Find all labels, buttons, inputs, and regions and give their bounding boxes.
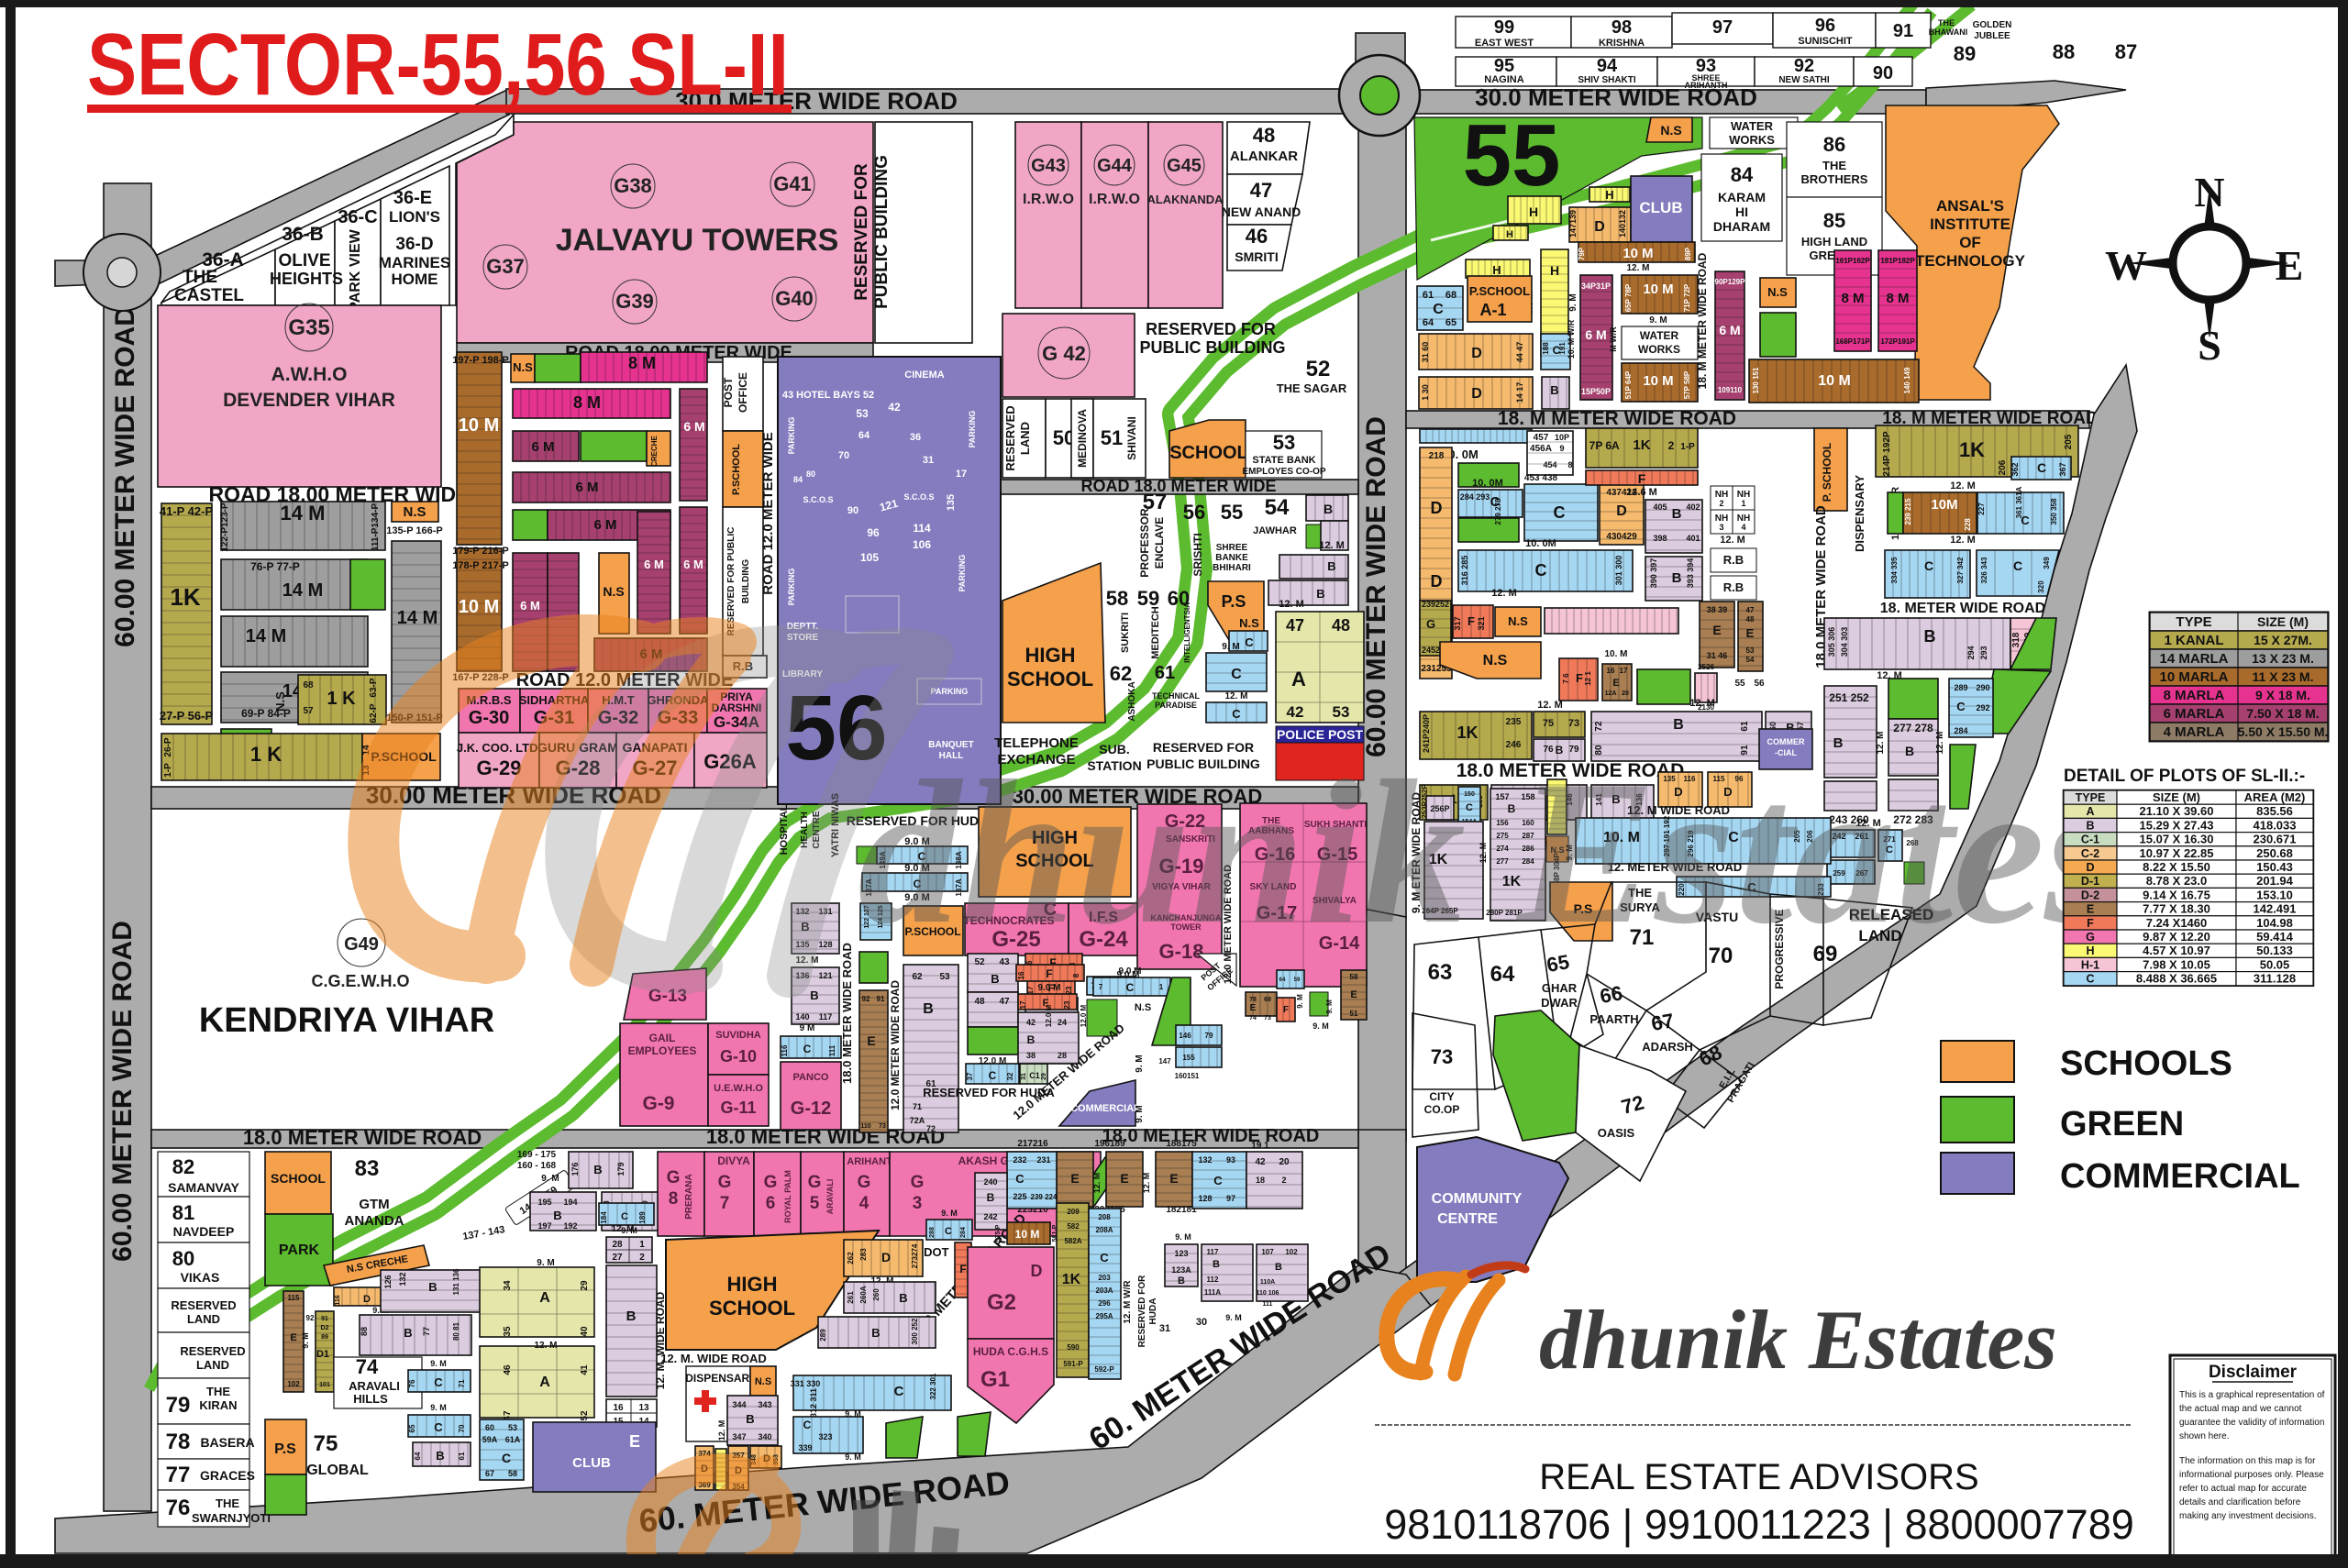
svg-text:37: 37 [966, 1072, 974, 1080]
svg-text:CITY: CITY [1429, 1090, 1454, 1103]
svg-text:6 M: 6 M [531, 439, 554, 455]
svg-text:17: 17 [1019, 1000, 1027, 1009]
svg-text:168P171P: 168P171P [1835, 337, 1870, 346]
svg-text:189: 189 [638, 1211, 647, 1224]
svg-text:CINEMA: CINEMA [904, 370, 944, 381]
svg-text:GRACES: GRACES [200, 1468, 255, 1483]
svg-text:81: 81 [172, 1201, 194, 1224]
svg-text:LION'S: LION'S [389, 208, 440, 226]
svg-text:A.W.H.O: A.W.H.O [271, 364, 348, 385]
svg-text:140 149: 140 149 [1903, 367, 1911, 393]
svg-text:H: H [2086, 944, 2094, 957]
svg-text:582: 582 [1067, 1222, 1080, 1231]
svg-text:9.87 X 12.20: 9.87 X 12.20 [2143, 930, 2210, 944]
svg-text:196189: 196189 [1094, 1139, 1125, 1149]
svg-text:126: 126 [383, 1275, 393, 1288]
svg-text:G: G [718, 1173, 732, 1192]
svg-text:48: 48 [1332, 616, 1350, 635]
svg-text:STATE BANK: STATE BANK [1252, 455, 1315, 466]
svg-text:E: E [1746, 626, 1755, 640]
svg-text:C-2: C-2 [2081, 847, 2099, 860]
svg-text:B: B [1275, 1262, 1282, 1273]
svg-text:C: C [1535, 561, 1547, 580]
svg-text:197: 197 [537, 1221, 551, 1231]
svg-text:9. M: 9. M [1135, 1055, 1145, 1072]
svg-text:62: 62 [1110, 662, 1132, 685]
svg-text:10 M: 10 M [459, 415, 499, 436]
svg-text:PARKING: PARKING [787, 569, 796, 606]
svg-text:18. M METER WIDE ROAD: 18. M METER WIDE ROAD [1696, 252, 1709, 389]
svg-text:M W/R: M W/R [1609, 326, 1618, 352]
svg-text:ARAVALI: ARAVALI [349, 1379, 400, 1393]
svg-text:HEIGHTS: HEIGHTS [270, 270, 343, 288]
svg-text:G 42: G 42 [1042, 342, 1086, 365]
svg-text:OASIS: OASIS [1598, 1126, 1635, 1140]
svg-text:12. M: 12. M [1720, 535, 1745, 546]
svg-text:JAWHAR: JAWHAR [1253, 525, 1297, 536]
svg-text:284 293: 284 293 [1460, 492, 1490, 502]
svg-text:ANSAL'S: ANSAL'S [1936, 197, 2004, 215]
svg-text:140132: 140132 [1618, 210, 1627, 237]
svg-text:393 394: 393 394 [1686, 558, 1695, 589]
svg-text:HILLS: HILLS [353, 1392, 388, 1406]
svg-text:96: 96 [1815, 16, 1835, 36]
svg-text:20: 20 [1622, 690, 1629, 697]
svg-text:9. M: 9. M [537, 1258, 554, 1268]
svg-text:SAMANVAY: SAMANVAY [168, 1180, 239, 1195]
svg-text:582A: 582A [1064, 1237, 1081, 1245]
svg-text:41-P 42-P: 41-P 42-P [160, 504, 214, 518]
svg-text:64: 64 [414, 1452, 422, 1460]
svg-text:N.S: N.S [1660, 123, 1681, 138]
svg-text:G: G [808, 1173, 822, 1192]
svg-text:304 303: 304 303 [1840, 627, 1849, 657]
svg-text:3: 3 [1719, 523, 1723, 532]
svg-text:123: 123 [1174, 1249, 1188, 1258]
svg-text:U.E.W.H.O: U.E.W.H.O [714, 1083, 763, 1094]
svg-text:50.133: 50.133 [2256, 944, 2293, 957]
svg-text:G41: G41 [773, 172, 812, 195]
svg-text:14 M: 14 M [281, 502, 326, 525]
svg-text:SIZE (M): SIZE (M) [2153, 790, 2200, 804]
svg-text:456A: 456A [1530, 444, 1552, 454]
svg-text:LAND: LAND [1018, 422, 1032, 455]
svg-text:155: 155 [1182, 1054, 1195, 1062]
svg-text:76-P 77-P: 76-P 77-P [250, 560, 300, 573]
svg-text:KENDRIYA VIHAR: KENDRIYA VIHAR [199, 1001, 494, 1040]
svg-text:D: D [1471, 346, 1482, 361]
svg-text:293: 293 [1979, 646, 1988, 659]
svg-text:MEDITECH: MEDITECH [1150, 606, 1161, 659]
svg-text:8 M: 8 M [628, 354, 656, 372]
svg-text:D: D [1031, 1262, 1043, 1280]
svg-text:116: 116 [781, 1044, 789, 1056]
svg-text:34P31P: 34P31P [1581, 282, 1611, 291]
svg-text:G43: G43 [1031, 156, 1066, 176]
svg-text:F: F [1638, 471, 1646, 486]
svg-text:DISPENSARY: DISPENSARY [1853, 475, 1866, 552]
svg-text:NAGINA: NAGINA [1484, 74, 1523, 85]
svg-text:TYPE: TYPE [2176, 614, 2211, 630]
svg-text:232: 232 [1013, 1155, 1026, 1165]
svg-text:55: 55 [1221, 501, 1243, 524]
svg-text:9 X 18 M.: 9 X 18 M. [2255, 688, 2310, 702]
svg-text:SMRITI: SMRITI [1235, 249, 1278, 264]
svg-text:B: B [1327, 559, 1335, 573]
svg-text:dhunik Estates: dhunik Estates [1539, 1293, 2057, 1386]
svg-text:8.488 X 36.665: 8.488 X 36.665 [2136, 972, 2217, 986]
svg-text:B: B [553, 1209, 561, 1222]
svg-text:SCHOOLS: SCHOOLS [2060, 1044, 2232, 1083]
svg-text:12. M. WIDE ROAD: 12. M. WIDE ROAD [660, 1352, 767, 1365]
svg-text:B: B [810, 988, 818, 1002]
svg-text:12. M: 12. M [1319, 540, 1345, 551]
svg-text:111A: 111A [1204, 1288, 1221, 1297]
svg-text:62-P: 62-P [369, 703, 379, 723]
svg-text:65P 78P: 65P 78P [1624, 283, 1633, 312]
svg-text:457: 457 [1534, 433, 1549, 443]
svg-text:B: B [991, 972, 999, 986]
svg-text:G: G [764, 1173, 778, 1192]
svg-text:1 K: 1 K [250, 743, 282, 766]
svg-text:9810118706 | 9910011223 | 8800: 9810118706 | 9910011223 | 8800007789 [1384, 1501, 2134, 1548]
svg-text:78: 78 [1249, 997, 1257, 1003]
svg-text:ASHOKA: ASHOKA [1127, 681, 1137, 721]
svg-text:PARK VIEW: PARK VIEW [348, 228, 363, 311]
svg-text:GHAR: GHAR [1542, 981, 1578, 995]
svg-text:140: 140 [795, 1012, 809, 1021]
svg-text:197-P 198-P: 197-P 198-P [452, 355, 509, 366]
svg-text:RESERVED: RESERVED [180, 1344, 245, 1358]
svg-text:JALVAYU TOWERS: JALVAYU TOWERS [556, 223, 839, 258]
svg-text:242: 242 [983, 1212, 997, 1221]
svg-text:CENTRE: CENTRE [1437, 1211, 1498, 1227]
svg-text:MEDINOVA: MEDINOVA [1076, 409, 1089, 468]
svg-text:51: 51 [1350, 1010, 1358, 1018]
svg-text:405: 405 [1653, 502, 1667, 512]
svg-text:G35: G35 [288, 315, 329, 340]
svg-text:58: 58 [1350, 973, 1358, 981]
svg-text:84: 84 [793, 475, 803, 484]
svg-text:H: H [1605, 188, 1613, 202]
svg-text:453 438: 453 438 [1524, 473, 1558, 483]
svg-text:8 M: 8 M [1886, 291, 1909, 306]
svg-text:E: E [2276, 242, 2304, 289]
svg-text:47: 47 [1746, 606, 1755, 614]
svg-text:D: D [1431, 499, 1443, 517]
svg-text:P.S: P.S [1222, 592, 1246, 611]
svg-text:WORKS: WORKS [1638, 343, 1680, 356]
svg-text:71P 72P: 71P 72P [1683, 283, 1691, 312]
svg-text:C: C [1433, 302, 1444, 317]
svg-text:250.68: 250.68 [2256, 846, 2293, 860]
svg-text:E: E [1712, 623, 1721, 637]
svg-text:320: 320 [2037, 580, 2045, 593]
svg-text:B: B [1672, 506, 1682, 522]
svg-text:E: E [867, 1033, 875, 1048]
svg-text:99: 99 [1494, 17, 1514, 38]
svg-text:12. M. WIDE ROAD: 12. M. WIDE ROAD [654, 1291, 667, 1389]
svg-text:10P: 10P [1555, 433, 1569, 442]
svg-text:344: 344 [732, 1400, 746, 1409]
svg-text:84: 84 [1731, 163, 1754, 186]
svg-text:72: 72 [1594, 721, 1604, 732]
svg-text:4: 4 [1741, 523, 1745, 532]
svg-text:9. M: 9. M [1325, 999, 1334, 1014]
svg-text:15 X 27M.: 15 X 27M. [2254, 633, 2312, 647]
svg-text:110 106: 110 106 [1257, 1290, 1279, 1297]
svg-text:1: 1 [1159, 983, 1164, 991]
svg-text:13 X 23 M.: 13 X 23 M. [2252, 651, 2314, 666]
svg-text:105: 105 [860, 551, 879, 564]
svg-text:BASERA: BASERA [200, 1435, 254, 1450]
svg-text:8: 8 [669, 1189, 679, 1209]
svg-text:10 M: 10 M [1623, 246, 1653, 261]
svg-text:311.128: 311.128 [2254, 972, 2296, 986]
svg-text:9. M: 9. M [1222, 642, 1239, 652]
svg-text:58: 58 [1106, 587, 1128, 610]
svg-text:B: B [436, 1449, 444, 1463]
svg-text:D: D [2086, 861, 2094, 874]
svg-text:7.24 X1460: 7.24 X1460 [2146, 916, 2208, 930]
svg-text:12. M: 12. M [1092, 1173, 1102, 1194]
svg-text:CASTEL: CASTEL [174, 286, 244, 305]
svg-text:79: 79 [166, 1393, 191, 1418]
svg-text:28: 28 [612, 1240, 623, 1250]
svg-text:NEW SATHI: NEW SATHI [1778, 75, 1830, 85]
svg-text:169 - 175: 169 - 175 [517, 1150, 557, 1160]
svg-text:36-C: 36-C [338, 207, 377, 227]
svg-text:COMMERCIAL: COMMERCIAL [1070, 1103, 1140, 1114]
svg-text:72: 72 [926, 1124, 936, 1133]
svg-text:REAL ESTATE ADVISORS: REAL ESTATE ADVISORS [1539, 1457, 1978, 1497]
svg-text:4: 4 [859, 1194, 869, 1213]
svg-text:18.0 METER WIDE ROAD: 18.0 METER WIDE ROAD [1102, 1126, 1320, 1146]
svg-text:2: 2 [1719, 499, 1723, 508]
svg-text:LAND: LAND [196, 1358, 229, 1372]
svg-text:PARADISE: PARADISE [1155, 701, 1197, 710]
svg-text:H: H [1506, 229, 1513, 240]
svg-text:E: E [1169, 1171, 1178, 1186]
svg-text:1: 1 [1741, 499, 1745, 508]
svg-text:9. M: 9. M [430, 1403, 447, 1412]
svg-text:JUBLEE: JUBLEE [1974, 31, 2010, 41]
svg-text:B: B [626, 1309, 637, 1324]
svg-text:G38: G38 [614, 174, 652, 197]
svg-text:6 M: 6 M [644, 558, 664, 571]
svg-text:B: B [1324, 502, 1333, 516]
svg-text:B: B [987, 1191, 995, 1204]
svg-text:GLOBAL: GLOBAL [306, 1463, 369, 1478]
svg-text:F: F [1283, 1005, 1289, 1015]
svg-text:D1: D1 [316, 1349, 329, 1360]
svg-text:AREA (M2): AREA (M2) [2244, 790, 2306, 804]
svg-text:9. M: 9. M [1296, 994, 1304, 1009]
svg-text:9.0 M: 9.0 M [1037, 983, 1060, 993]
svg-text:101: 101 [319, 1382, 330, 1388]
svg-text:E: E [1120, 1171, 1128, 1186]
svg-text:31 46: 31 46 [1707, 651, 1728, 660]
svg-text:1 K: 1 K [327, 689, 356, 709]
svg-text:INSTITUTE: INSTITUTE [1930, 215, 2010, 233]
svg-text:F: F [1046, 967, 1052, 980]
svg-text:CRECHE: CRECHE [650, 435, 659, 466]
svg-text:15.29 X 27.43: 15.29 X 27.43 [2140, 818, 2214, 832]
svg-text:178-P 217-P: 178-P 217-P [452, 560, 509, 571]
svg-text:W: W [2105, 242, 2147, 289]
svg-text:331 330: 331 330 [791, 1379, 821, 1388]
svg-text:C: C [894, 1384, 904, 1399]
svg-text:C1: C1 [1029, 1071, 1040, 1080]
svg-text:THE: THE [206, 1385, 230, 1398]
svg-text:10 MARLA: 10 MARLA [2159, 669, 2228, 685]
svg-text:A-1: A-1 [1479, 301, 1506, 319]
svg-text:VIKAS: VIKAS [181, 1270, 220, 1285]
svg-text:the actual map and we can: the actual map and we cannot [2179, 1404, 2302, 1414]
svg-text:42: 42 [1287, 703, 1304, 721]
svg-text:27-P 56-P: 27-P 56-P [160, 709, 214, 723]
svg-text:117: 117 [1207, 1248, 1219, 1256]
svg-text:150.43: 150.43 [2256, 860, 2293, 874]
svg-text:106: 106 [913, 538, 931, 551]
svg-text:ARAVALI: ARAVALI [825, 1179, 835, 1215]
svg-text:C: C [434, 1375, 443, 1389]
svg-text:362: 362 [2010, 462, 2020, 476]
svg-text:20: 20 [1279, 1157, 1290, 1167]
svg-text:A: A [1291, 668, 1306, 690]
svg-text:HIGH: HIGH [1025, 644, 1076, 667]
svg-text:A: A [539, 1375, 550, 1390]
svg-text:12. M: 12. M [1491, 588, 1517, 599]
svg-text:64: 64 [858, 430, 870, 441]
svg-text:GTM: GTM [359, 1197, 389, 1212]
svg-text:D: D [1616, 503, 1627, 519]
svg-text:C: C [502, 1451, 511, 1465]
svg-text:235: 235 [1506, 717, 1522, 727]
svg-text:18. M METER WIDE ROAD: 18. M METER WIDE ROAD [1498, 408, 1736, 429]
svg-text:260A: 260A [859, 1286, 868, 1303]
svg-text:2: 2 [639, 1253, 645, 1263]
svg-text:N.S: N.S [273, 691, 287, 712]
svg-text:OF: OF [1959, 234, 1981, 251]
svg-text:8 M: 8 M [1841, 291, 1864, 306]
svg-text:110A: 110A [1260, 1279, 1275, 1286]
svg-text:C: C [1126, 981, 1135, 994]
svg-text:COMMUNITY: COMMUNITY [1432, 1191, 1523, 1207]
svg-text:G-29: G-29 [477, 756, 522, 779]
svg-text:G-11: G-11 [720, 1099, 756, 1117]
svg-text:29: 29 [580, 1280, 590, 1291]
svg-text:47: 47 [999, 997, 1010, 1007]
svg-text:B: B [1178, 1275, 1185, 1286]
svg-text:31 60: 31 60 [1421, 342, 1430, 363]
svg-text:277 278: 277 278 [1893, 722, 1933, 734]
svg-text:188: 188 [1542, 342, 1550, 355]
svg-text:P.SCHOOL: P.SCHOOL [731, 444, 742, 495]
svg-text:N.S: N.S [1483, 653, 1508, 668]
svg-text:OLIVE: OLIVE [278, 251, 330, 271]
svg-text:93: 93 [1226, 1155, 1235, 1165]
svg-text:6A: 6A [1605, 439, 1620, 452]
svg-text:12. M: 12. M [1689, 698, 1715, 709]
svg-text:TECHNICAL: TECHNICAL [1152, 691, 1200, 701]
svg-text:305 306: 305 306 [1827, 627, 1836, 657]
svg-text:making any investment decision: making any investment decisions. [2179, 1511, 2317, 1521]
svg-text:16: 16 [1017, 971, 1025, 979]
svg-text:F: F [2087, 917, 2094, 930]
svg-text:327 342: 327 342 [1956, 557, 1965, 583]
svg-text:ALAKNANDA: ALAKNANDA [1146, 193, 1224, 206]
svg-text:206: 206 [1998, 459, 2008, 475]
svg-text:E: E [1350, 989, 1357, 1000]
svg-text:HUDA: HUDA [1148, 1298, 1158, 1325]
svg-text:110: 110 [860, 1123, 870, 1130]
svg-text:64: 64 [1279, 977, 1286, 983]
svg-text:48: 48 [974, 997, 985, 1007]
svg-text:CO.OP: CO.OP [1424, 1103, 1460, 1116]
svg-text:SHIV SHAKTI: SHIV SHAKTI [1578, 75, 1636, 85]
svg-text:1 KANAL: 1 KANAL [2164, 633, 2223, 648]
svg-text:EAST WEST: EAST WEST [1475, 38, 1534, 49]
svg-text:G-12: G-12 [791, 1099, 831, 1119]
svg-text:121: 121 [818, 971, 832, 980]
svg-text:6 MARLA: 6 MARLA [2164, 706, 2225, 722]
svg-text:47: 47 [1250, 179, 1272, 202]
svg-text:128: 128 [1198, 1194, 1212, 1203]
svg-text:S.C.O.S: S.C.O.S [803, 495, 833, 504]
svg-text:I.R.W.O: I.R.W.O [1089, 192, 1140, 207]
svg-text:6 M: 6 M [1719, 323, 1740, 337]
svg-text:B: B [1027, 1033, 1036, 1046]
svg-text:284: 284 [1954, 726, 1967, 735]
svg-text:85: 85 [1823, 209, 1845, 232]
svg-text:575-P: 575-P [995, 1224, 1002, 1242]
svg-text:10 M: 10 M [1818, 373, 1851, 389]
svg-text:HUDA C.G.H.S: HUDA C.G.H.S [973, 1345, 1048, 1358]
svg-text:46: 46 [1246, 225, 1268, 248]
svg-text:47: 47 [1286, 616, 1304, 635]
svg-text:N.S: N.S [403, 504, 426, 520]
svg-text:NEW ANAND: NEW ANAND [1222, 204, 1301, 219]
svg-text:THE: THE [1822, 159, 1846, 172]
svg-text:B: B [1672, 570, 1682, 586]
svg-text:RESERVED FOR: RESERVED FOR [852, 163, 871, 301]
svg-text:12. M: 12. M [1142, 1173, 1151, 1194]
svg-text:55: 55 [1734, 679, 1745, 689]
svg-text:367: 367 [2058, 462, 2067, 476]
svg-text:194: 194 [563, 1198, 577, 1207]
svg-text:70: 70 [838, 450, 849, 461]
svg-text:42: 42 [1255, 1157, 1266, 1167]
svg-text:63-P: 63-P [369, 678, 379, 697]
svg-text:52: 52 [580, 1410, 590, 1421]
svg-text:31: 31 [923, 455, 934, 466]
svg-text:160151: 160151 [1175, 1072, 1200, 1080]
svg-text:77: 77 [166, 1463, 191, 1487]
svg-text:10.97 X 22.85: 10.97 X 22.85 [2140, 846, 2214, 860]
svg-text:17: 17 [956, 469, 967, 480]
svg-text:27: 27 [612, 1253, 623, 1263]
svg-text:G1: G1 [980, 1367, 1010, 1392]
svg-text:G2: G2 [987, 1290, 1016, 1315]
svg-text:251 252: 251 252 [1829, 691, 1869, 704]
svg-text:P.S: P.S [274, 1441, 296, 1457]
svg-text:WATER: WATER [1640, 329, 1679, 342]
svg-text:231: 231 [1036, 1155, 1050, 1165]
svg-text:65: 65 [408, 1424, 416, 1432]
svg-text:SHREE: SHREE [1216, 543, 1248, 553]
svg-text:102: 102 [287, 1380, 300, 1388]
